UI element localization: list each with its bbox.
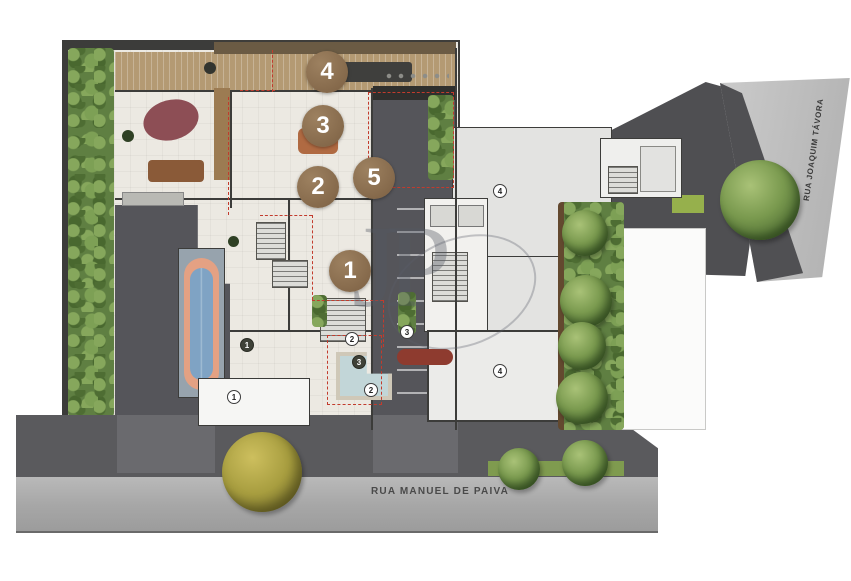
red-bench (397, 349, 453, 365)
point-marker-4b: 4 (493, 364, 507, 378)
elevator-shaft (458, 205, 484, 227)
lap-pool (190, 268, 213, 380)
stairs-mid (272, 260, 308, 288)
unit-marker-5: 5 (353, 157, 395, 199)
dining-table (148, 160, 204, 182)
unit-boundary-dashed (260, 215, 312, 216)
potted-plant (228, 236, 239, 247)
point-marker-2b: 2 (364, 383, 378, 397)
tree (222, 432, 302, 512)
siteplan-canvas: RUA MANUEL DE PAIVA RUA JOAQUIM TÁVORA (0, 0, 851, 581)
point-marker-3: 3 (400, 325, 414, 339)
unit-boundary-dashed (312, 215, 313, 300)
tree (720, 160, 800, 240)
unit-marker-3: 3 (302, 105, 344, 147)
unit-marker-4: 4 (306, 51, 348, 93)
left-hedge (68, 48, 114, 417)
tree (498, 448, 540, 490)
unit-marker-2: 2 (297, 166, 339, 208)
neighbor-white-building (620, 228, 706, 430)
tree (560, 275, 612, 327)
stairs-left (256, 222, 286, 260)
potted-plant (204, 62, 216, 74)
driveway-curb-cut-center (373, 415, 458, 473)
unit-boundary-dashed (240, 90, 275, 91)
bar-stools (383, 72, 449, 80)
point-marker-1: 1 (227, 390, 241, 404)
stair-landing (640, 146, 676, 192)
unit-boundary-dashed (272, 50, 273, 92)
potted-plant (122, 130, 134, 142)
exterior-stairs (608, 166, 638, 194)
entrance-room (198, 378, 310, 426)
point-marker-1-dark: 1 (240, 338, 254, 352)
point-marker-2: 2 (345, 332, 359, 346)
kitchen-counter (122, 192, 184, 206)
unit-boundary-dashed (228, 97, 229, 215)
tree (556, 372, 608, 424)
tree (558, 322, 606, 370)
wall (230, 92, 232, 208)
tree (562, 210, 608, 256)
unit-marker-1: 1 (329, 250, 371, 292)
point-marker-3-dark: 3 (352, 355, 366, 369)
tree (562, 440, 608, 486)
point-marker-4: 4 (493, 184, 507, 198)
